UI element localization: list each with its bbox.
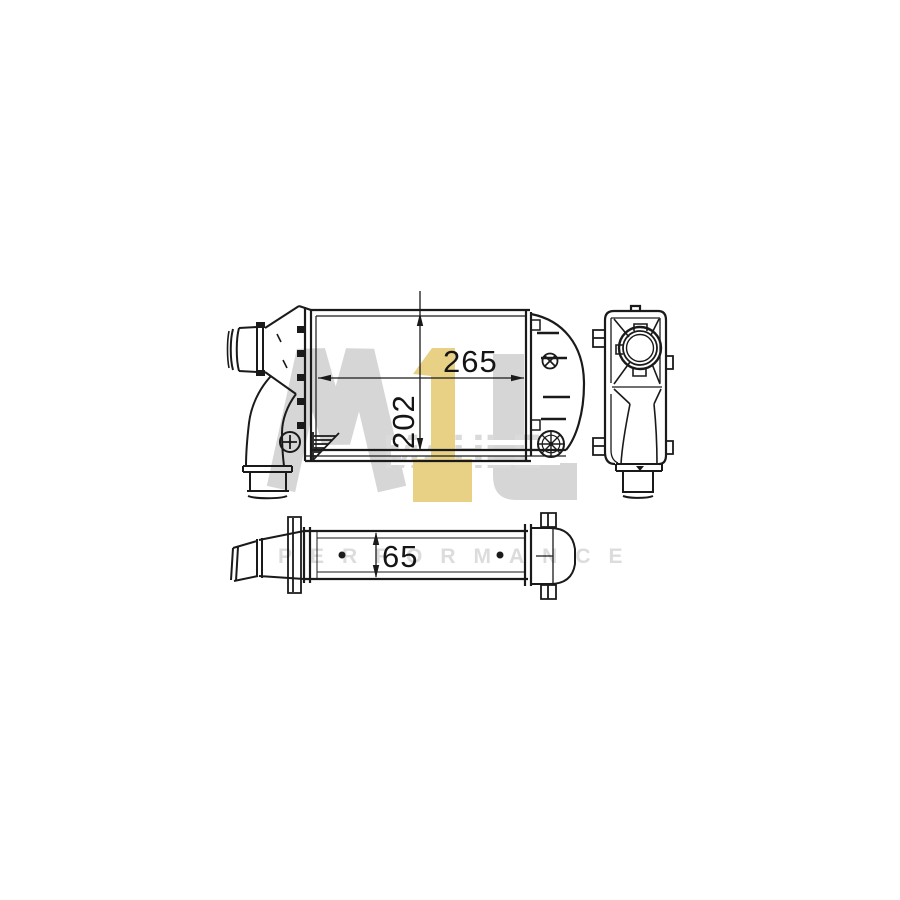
tank-boss-marks — [537, 333, 570, 419]
dimension-width: 265 — [318, 344, 524, 381]
outlet-pipe — [243, 466, 292, 498]
dim-width-label: 265 — [443, 344, 498, 379]
dimension-depth: 65 — [373, 532, 419, 578]
tank-screw-icon — [280, 432, 300, 452]
arrowhead-left-icon — [318, 375, 331, 381]
right-header-clips — [531, 320, 540, 430]
screw-icon — [543, 354, 558, 369]
inlet-pipe — [231, 306, 299, 394]
bottom-mounting-tabs — [288, 513, 556, 599]
dimension-height: 202 — [386, 291, 423, 451]
arrowhead-up-icon — [417, 313, 423, 326]
bolt-icon — [538, 431, 564, 457]
intercooler-technical-drawing: 265 202 65 — [0, 0, 900, 900]
bottom-tube-inner — [317, 531, 525, 579]
arrowhead-right-icon — [511, 375, 524, 381]
front-core-outline — [299, 306, 584, 461]
rivet-dot — [339, 552, 346, 559]
rivet-dot — [497, 552, 504, 559]
bottom-end-cap-seam — [536, 528, 553, 584]
dim-depth-label: 65 — [382, 539, 418, 574]
side-view — [593, 306, 673, 498]
dim-height-label: 202 — [386, 394, 421, 449]
product-image: MAHLE PERFORMANCE — [0, 0, 900, 900]
